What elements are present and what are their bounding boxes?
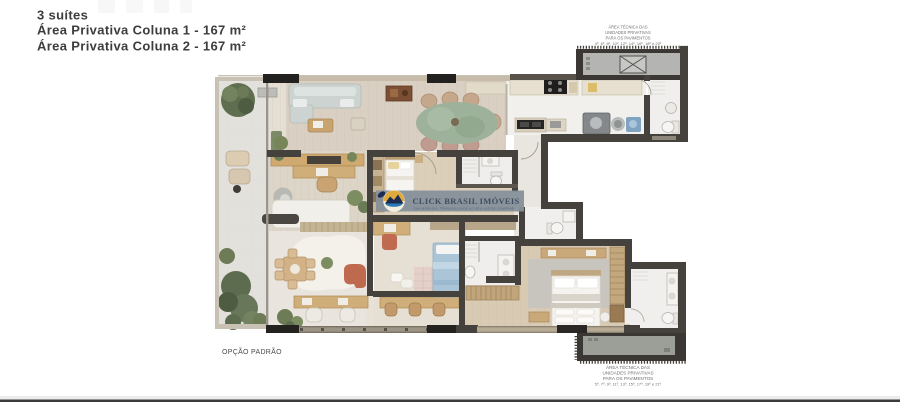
svg-text:3 suítes: 3 suítes xyxy=(37,8,88,23)
svg-text:UNIDADES PRIVATIVAS: UNIDADES PRIVATIVAS xyxy=(605,30,651,35)
svg-text:5º, 7º, 9º, 11º, 13º, 15º, 17º: 5º, 7º, 9º, 11º, 13º, 15º, 17º, 19º e 21… xyxy=(595,382,662,387)
svg-text:CLICK BRASIL IMÓVEIS: CLICK BRASIL IMÓVEIS xyxy=(412,196,519,206)
svg-text:ÁREA TÉCNICA DAS: ÁREA TÉCNICA DAS xyxy=(606,364,650,370)
svg-text:4º, 6º, 8º, 10º, 12º, 14º, 16º: 4º, 6º, 8º, 10º, 12º, 14º, 16º, 18º e 20… xyxy=(595,41,662,46)
svg-text:Área Privativa Coluna 2 - 167: Área Privativa Coluna 2 - 167 m² xyxy=(37,39,246,54)
svg-text:PARA OS PAVIMENTOS: PARA OS PAVIMENTOS xyxy=(606,36,651,41)
svg-text:Área Privativa Coluna 1 - 167: Área Privativa Coluna 1 - 167 m² xyxy=(37,23,246,38)
svg-text:OPÇÃO PADRÃO: OPÇÃO PADRÃO xyxy=(222,347,282,356)
svg-text:SUA MORADIA, TRANQUILIDADE AO: SUA MORADIA, TRANQUILIDADE AO SEU LAR DE… xyxy=(413,207,515,211)
svg-text:UNIDADES PRIVATIVAS: UNIDADES PRIVATIVAS xyxy=(602,371,653,376)
svg-text:PARA OS PAVIMENTOS: PARA OS PAVIMENTOS xyxy=(603,376,653,381)
svg-text:ÁREA TÉCNICA DAS: ÁREA TÉCNICA DAS xyxy=(608,25,648,30)
